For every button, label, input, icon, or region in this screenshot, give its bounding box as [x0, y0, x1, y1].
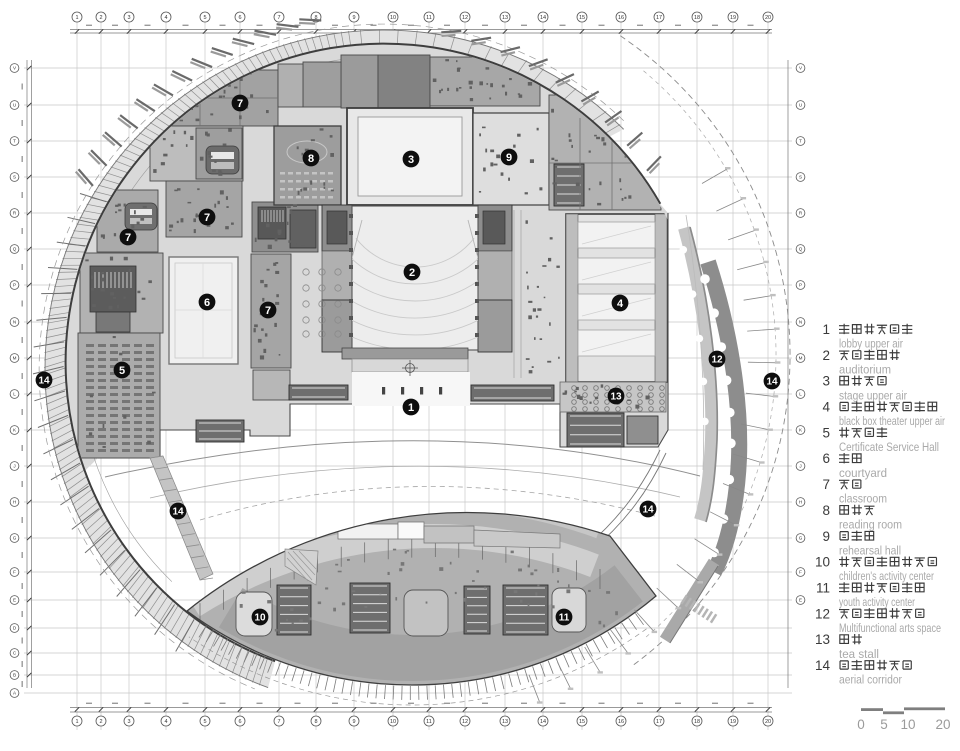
svg-text:7: 7	[277, 719, 280, 725]
svg-text:10: 10	[390, 15, 396, 21]
svg-text:classroom: classroom	[839, 492, 887, 506]
svg-text:7: 7	[265, 305, 271, 317]
svg-text:M: M	[799, 356, 803, 361]
svg-text:6: 6	[238, 15, 241, 21]
svg-text:5: 5	[203, 719, 206, 725]
svg-text:12: 12	[462, 15, 468, 21]
svg-text:6: 6	[204, 297, 210, 309]
svg-text:stage upper air: stage upper air	[839, 388, 907, 402]
svg-text:G: G	[13, 536, 17, 541]
svg-text:7: 7	[822, 477, 830, 492]
svg-text:M: M	[13, 356, 17, 361]
svg-text:14: 14	[38, 376, 50, 387]
svg-text:T: T	[799, 139, 802, 144]
svg-text:children's activity center: children's activity center	[839, 569, 934, 583]
svg-text:Certificate Service Hall: Certificate Service Hall	[839, 440, 939, 454]
svg-text:12: 12	[462, 719, 468, 725]
svg-text:16: 16	[618, 719, 624, 725]
svg-text:7: 7	[277, 15, 280, 21]
svg-text:N: N	[13, 320, 16, 325]
svg-text:S: S	[13, 175, 16, 180]
svg-text:14: 14	[766, 377, 778, 388]
svg-text:3: 3	[408, 154, 414, 166]
svg-text:U: U	[13, 103, 16, 108]
svg-text:black box theater upper air: black box theater upper air	[839, 414, 945, 428]
svg-text:2: 2	[99, 719, 102, 725]
svg-text:14: 14	[642, 505, 654, 516]
svg-text:14: 14	[815, 658, 831, 673]
svg-text:aerial corridor: aerial corridor	[839, 673, 902, 687]
svg-text:8: 8	[308, 153, 314, 165]
svg-text:10: 10	[815, 555, 830, 570]
svg-text:5: 5	[822, 425, 830, 440]
svg-text:9: 9	[352, 719, 355, 725]
svg-text:4: 4	[822, 400, 830, 415]
svg-text:7: 7	[204, 212, 210, 224]
svg-text:10: 10	[900, 717, 915, 732]
svg-text:B: B	[13, 673, 16, 678]
svg-text:rehearsal hall: rehearsal hall	[839, 543, 901, 557]
svg-text:6: 6	[238, 719, 241, 725]
svg-text:2: 2	[99, 15, 102, 21]
svg-text:8: 8	[822, 503, 830, 518]
svg-text:19: 19	[730, 719, 736, 725]
svg-text:5: 5	[203, 15, 206, 21]
svg-text:12: 12	[815, 606, 830, 621]
svg-text:10: 10	[390, 719, 396, 725]
svg-text:0: 0	[857, 717, 865, 732]
svg-text:F: F	[799, 570, 802, 575]
svg-text:auditorium: auditorium	[839, 363, 891, 377]
svg-text:H: H	[13, 500, 16, 505]
svg-text:youth activity center: youth activity center	[839, 595, 915, 609]
svg-text:courtyard: courtyard	[839, 466, 887, 480]
svg-text:4: 4	[617, 298, 624, 310]
svg-text:Q: Q	[13, 247, 17, 252]
svg-text:L: L	[799, 392, 802, 397]
svg-text:17: 17	[656, 719, 662, 725]
svg-text:15: 15	[579, 15, 585, 21]
svg-text:5: 5	[119, 365, 125, 377]
svg-text:3: 3	[822, 374, 830, 389]
svg-text:15: 15	[579, 719, 585, 725]
svg-text:13: 13	[502, 15, 508, 21]
svg-text:20: 20	[765, 719, 771, 725]
svg-text:lobby upper air: lobby upper air	[839, 337, 903, 351]
svg-text:T: T	[13, 139, 16, 144]
svg-text:3: 3	[127, 15, 130, 21]
svg-text:tea stall: tea stall	[839, 647, 879, 661]
svg-text:1: 1	[408, 402, 414, 414]
svg-text:3: 3	[127, 719, 130, 725]
svg-text:9: 9	[352, 15, 355, 21]
svg-text:F: F	[13, 570, 16, 575]
svg-text:E: E	[13, 598, 16, 603]
svg-text:7: 7	[237, 98, 243, 110]
svg-text:L: L	[13, 392, 16, 397]
svg-text:13: 13	[815, 632, 830, 647]
svg-text:S: S	[799, 175, 802, 180]
svg-text:2: 2	[409, 267, 415, 279]
svg-text:10: 10	[254, 613, 266, 624]
svg-text:20: 20	[765, 15, 771, 21]
svg-text:14: 14	[540, 719, 546, 725]
svg-text:Multifunctional arts space: Multifunctional arts space	[839, 621, 941, 635]
svg-text:4: 4	[164, 719, 167, 725]
svg-text:4: 4	[164, 15, 167, 21]
svg-text:11: 11	[559, 613, 570, 624]
svg-text:18: 18	[694, 15, 700, 21]
svg-text:12: 12	[711, 355, 723, 366]
svg-text:13: 13	[502, 719, 508, 725]
svg-text:2: 2	[822, 348, 830, 363]
svg-text:U: U	[799, 103, 802, 108]
svg-text:14: 14	[172, 507, 184, 518]
svg-text:7: 7	[125, 232, 131, 244]
svg-text:17: 17	[656, 15, 662, 21]
svg-text:20: 20	[935, 717, 950, 732]
svg-text:H: H	[799, 500, 802, 505]
svg-text:11: 11	[816, 581, 830, 596]
svg-text:E: E	[799, 598, 802, 603]
svg-text:19: 19	[730, 15, 736, 21]
svg-text:1: 1	[822, 322, 830, 337]
svg-text:9: 9	[506, 152, 512, 164]
svg-text:P: P	[799, 283, 802, 288]
svg-text:9: 9	[822, 529, 830, 544]
svg-text:P: P	[13, 283, 16, 288]
svg-text:5: 5	[880, 717, 888, 732]
svg-text:reading room: reading room	[839, 518, 902, 532]
svg-text:J: J	[799, 464, 801, 469]
svg-text:14: 14	[540, 15, 546, 21]
svg-text:6: 6	[822, 451, 830, 466]
svg-text:G: G	[799, 536, 803, 541]
svg-text:J: J	[13, 464, 15, 469]
svg-text:1: 1	[75, 15, 78, 21]
svg-text:8: 8	[314, 719, 317, 725]
svg-text:11: 11	[426, 15, 432, 21]
svg-text:16: 16	[618, 15, 624, 21]
svg-text:N: N	[799, 320, 802, 325]
svg-text:1: 1	[75, 719, 78, 725]
svg-text:13: 13	[610, 392, 622, 403]
svg-text:18: 18	[694, 719, 700, 725]
svg-text:11: 11	[426, 719, 432, 725]
svg-text:Q: Q	[799, 247, 803, 252]
